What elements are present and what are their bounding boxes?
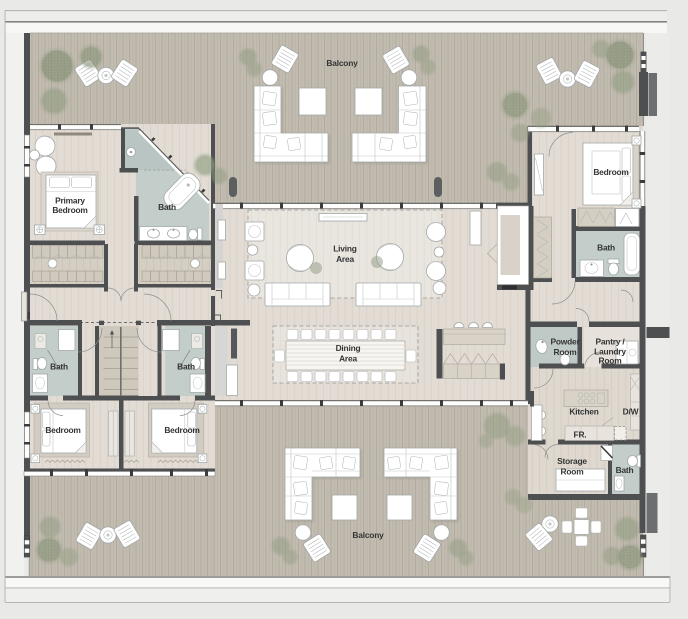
svg-text:FR.: FR.	[574, 430, 587, 440]
svg-text:Bedroom: Bedroom	[593, 167, 628, 177]
svg-text:Kitchen: Kitchen	[569, 407, 598, 417]
svg-text:Bedroom: Bedroom	[164, 425, 199, 435]
svg-text:Balcony: Balcony	[352, 530, 384, 540]
svg-text:Room: Room	[561, 467, 584, 477]
svg-text:Powder: Powder	[550, 337, 580, 347]
svg-text:Pantry /: Pantry /	[595, 337, 625, 347]
svg-text:Living: Living	[333, 244, 357, 254]
svg-text:Balcony: Balcony	[326, 58, 358, 68]
svg-text:Primary: Primary	[55, 196, 85, 206]
svg-text:Dining: Dining	[336, 343, 361, 353]
svg-text:Bath: Bath	[597, 243, 615, 253]
svg-text:D/W: D/W	[623, 407, 639, 417]
svg-text:Area: Area	[339, 354, 357, 364]
svg-text:Bedroom: Bedroom	[45, 425, 80, 435]
svg-text:Bedroom: Bedroom	[52, 205, 87, 215]
svg-text:Bath: Bath	[177, 362, 195, 372]
svg-text:Bath: Bath	[616, 465, 634, 475]
svg-text:Bath: Bath	[50, 362, 68, 372]
svg-text:Area: Area	[336, 254, 354, 264]
svg-text:Bath: Bath	[158, 202, 176, 212]
svg-text:Room: Room	[599, 356, 622, 366]
svg-text:Storage: Storage	[557, 456, 587, 466]
svg-text:Room: Room	[554, 347, 577, 357]
